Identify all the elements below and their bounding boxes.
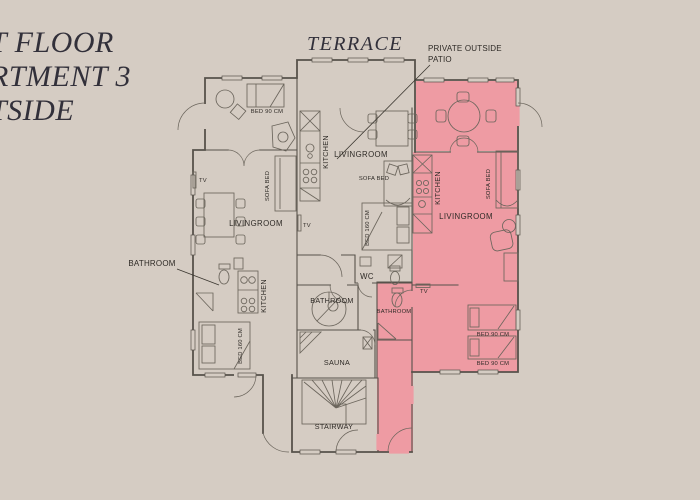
apt3-bed90-second-label: BED 90 CM (477, 361, 509, 367)
middle-sofabed-label: SOFA BED (359, 176, 389, 182)
apt3-tv-label: TV (420, 289, 428, 295)
left-bed160-label: BED 160 CM (238, 328, 244, 364)
apt3-livingroom-label: LIVINGROOM (439, 212, 493, 221)
wc-label: WC (360, 272, 374, 281)
private-patio-region (416, 81, 517, 151)
title-line-1: T FLOOR (0, 26, 114, 59)
apt3-bathroom-label: BATHROOM (377, 309, 412, 315)
left-livingroom-label: LIVINGROOM (229, 219, 283, 228)
apt3-bed90-first-label: BED 90 CM (477, 332, 509, 338)
stairway-label: STAIRWAY (315, 422, 353, 431)
patio-note-line-1: PRIVATE OUTSIDE (428, 44, 502, 53)
middle-bathroom-label: BATHROOM (310, 296, 353, 305)
left-bed90-label: BED 90 CM (251, 109, 283, 115)
terrace-label: TERRACE (307, 33, 403, 55)
floor-plan: T FLOOR RTMENT 3 TSIDE TERRACE PRIVATE O… (0, 0, 700, 500)
middle-bed160-label: BED 160 CM (365, 210, 371, 246)
patio-note-line-2: PATIO (428, 55, 452, 64)
middle-tv-label: TV (303, 223, 311, 229)
title-line-2: RTMENT 3 (0, 60, 131, 93)
bathroom-callout-label: BATHROOM (128, 259, 175, 268)
apartment3-bath-corridor-region (377, 282, 413, 452)
middle-kitchen-label: KITCHEN (321, 135, 330, 169)
left-kitchen-label: KITCHEN (259, 279, 268, 313)
left-sofabed-label: SOFA BED (265, 171, 271, 201)
sauna-label: SAUNA (324, 358, 350, 367)
left-tv-label: TV (199, 178, 207, 184)
middle-livingroom-label: LIVINGROOM (334, 150, 388, 159)
apartment3-region (413, 152, 518, 372)
title-line-3: TSIDE (0, 94, 74, 127)
apt3-sofabed-label: SOFA BED (486, 169, 492, 199)
apt3-kitchen-label: KITCHEN (433, 171, 442, 205)
